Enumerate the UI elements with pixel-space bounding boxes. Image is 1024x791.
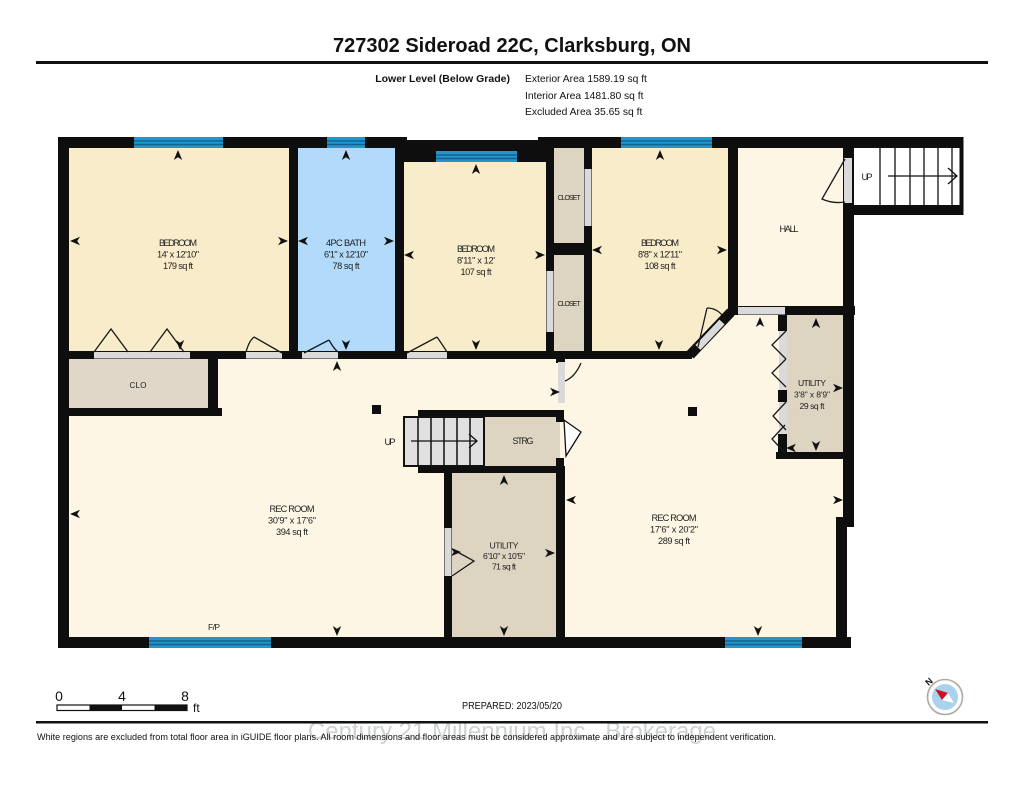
- svg-text:6'1" x 12'10": 6'1" x 12'10": [324, 250, 368, 260]
- svg-text:CLOSET: CLOSET: [558, 301, 582, 308]
- svg-text:6'10" x 10'5": 6'10" x 10'5": [483, 551, 525, 561]
- svg-text:Interior Area 1481.80 sq ft: Interior Area 1481.80 sq ft: [525, 91, 644, 102]
- svg-text:78 sq ft: 78 sq ft: [333, 261, 360, 271]
- svg-text:REC ROOM: REC ROOM: [652, 513, 697, 523]
- svg-text:4: 4: [118, 688, 126, 704]
- svg-text:394 sq ft: 394 sq ft: [276, 527, 308, 537]
- svg-text:0: 0: [55, 688, 63, 704]
- svg-text:CLOSET: CLOSET: [558, 195, 582, 202]
- svg-text:8: 8: [181, 688, 189, 704]
- svg-text:29 sq ft: 29 sq ft: [800, 401, 826, 411]
- svg-text:107 sq ft: 107 sq ft: [461, 267, 492, 277]
- svg-text:14' x 12'10": 14' x 12'10": [157, 250, 199, 260]
- svg-text:3'8" x 8'9": 3'8" x 8'9": [794, 390, 830, 400]
- svg-text:STRG: STRG: [513, 436, 534, 446]
- svg-text:BEDROOM: BEDROOM: [457, 244, 495, 254]
- svg-text:ft: ft: [193, 701, 200, 715]
- svg-text:PREPARED: 2023/05/20: PREPARED: 2023/05/20: [462, 700, 562, 712]
- svg-text:UP: UP: [862, 172, 873, 182]
- svg-text:UTILITY: UTILITY: [798, 378, 826, 388]
- svg-text:4PC BATH: 4PC BATH: [326, 238, 366, 248]
- svg-text:289 sq ft: 289 sq ft: [658, 536, 690, 546]
- svg-text:17'6" x 20'2": 17'6" x 20'2": [650, 525, 698, 535]
- svg-text:30'9" x 17'6": 30'9" x 17'6": [268, 516, 316, 526]
- svg-text:Lower Level (Below Grade): Lower Level (Below Grade): [375, 73, 510, 85]
- svg-text:179 sq ft: 179 sq ft: [163, 261, 193, 271]
- svg-text:Excluded Area 35.65 sq ft: Excluded Area 35.65 sq ft: [525, 107, 642, 118]
- svg-text:8'11" x 12': 8'11" x 12': [457, 256, 495, 266]
- svg-text:71 sq ft: 71 sq ft: [492, 562, 517, 572]
- svg-text:F/P: F/P: [208, 622, 220, 632]
- svg-text:HALL: HALL: [780, 224, 799, 234]
- svg-text:BEDROOM: BEDROOM: [641, 238, 679, 248]
- svg-text:BEDROOM: BEDROOM: [159, 238, 197, 248]
- svg-text:727302 Sideroad 22C, Clarksbur: 727302 Sideroad 22C, Clarksburg, ON: [333, 35, 691, 57]
- svg-text:UP: UP: [385, 437, 396, 447]
- svg-text:8'8" x 12'11": 8'8" x 12'11": [638, 250, 682, 260]
- svg-text:Exterior Area 1589.19 sq ft: Exterior Area 1589.19 sq ft: [525, 74, 647, 85]
- svg-text:108 sq ft: 108 sq ft: [645, 261, 676, 271]
- svg-text:REC ROOM: REC ROOM: [270, 504, 315, 514]
- svg-text:UTILITY: UTILITY: [490, 541, 519, 551]
- svg-text:White regions are excluded fro: White regions are excluded from total fl…: [37, 732, 776, 743]
- svg-text:CLO: CLO: [130, 381, 147, 390]
